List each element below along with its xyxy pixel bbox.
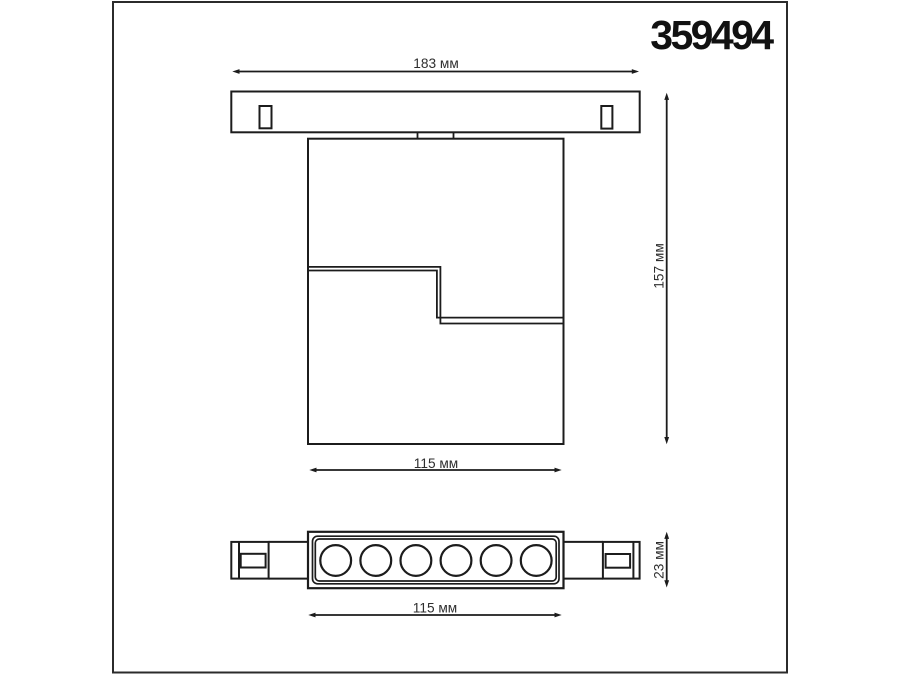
svg-text:183 мм: 183 мм <box>413 56 458 71</box>
svg-text:115 мм: 115 мм <box>414 456 458 471</box>
svg-text:23 мм: 23 мм <box>652 541 667 579</box>
svg-text:115 мм: 115 мм <box>413 600 457 615</box>
svg-text:157 мм: 157 мм <box>652 243 667 288</box>
svg-text:359494: 359494 <box>650 12 774 58</box>
